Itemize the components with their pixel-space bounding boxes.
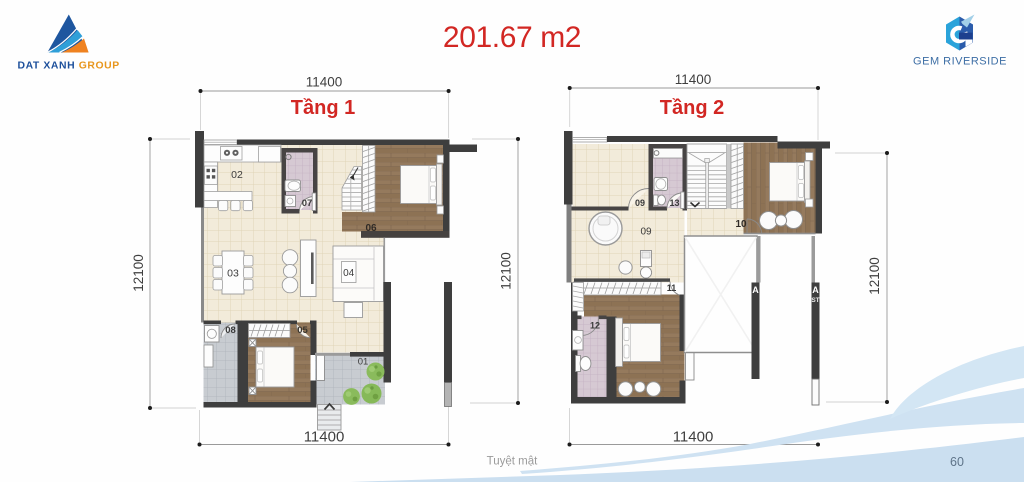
svg-text:60: 60: [950, 455, 964, 469]
svg-text:13: 13: [669, 198, 679, 208]
svg-text:201.67 m2: 201.67 m2: [443, 21, 581, 54]
svg-text:08: 08: [225, 325, 236, 336]
svg-text:12100: 12100: [499, 252, 514, 290]
svg-text:11400: 11400: [675, 72, 712, 87]
svg-text:11400: 11400: [304, 429, 345, 446]
svg-text:A: A: [812, 285, 819, 295]
svg-text:04: 04: [343, 268, 355, 279]
svg-text:Tầng 2: Tầng 2: [660, 97, 724, 119]
svg-text:Tầng 1: Tầng 1: [291, 97, 355, 119]
svg-text:ST: ST: [811, 297, 819, 304]
svg-text:11400: 11400: [306, 75, 343, 90]
svg-text:01: 01: [358, 357, 369, 368]
svg-text:12: 12: [590, 321, 600, 331]
svg-text:Tuyệt mật: Tuyệt mật: [487, 456, 539, 468]
svg-text:02: 02: [231, 169, 243, 181]
svg-text:11: 11: [667, 283, 677, 293]
svg-text:09: 09: [640, 227, 652, 238]
svg-text:12100: 12100: [867, 257, 882, 295]
svg-text:05: 05: [297, 325, 308, 336]
svg-text:03: 03: [227, 268, 239, 280]
svg-text:11400: 11400: [673, 429, 714, 446]
svg-text:09: 09: [635, 198, 645, 208]
svg-text:07: 07: [302, 198, 313, 209]
svg-text:10: 10: [735, 219, 747, 230]
svg-text:06: 06: [365, 223, 377, 234]
svg-text:DAT XANH GROUP: DAT XANH GROUP: [18, 61, 120, 72]
svg-text:GEM RIVERSIDE: GEM RIVERSIDE: [913, 56, 1007, 68]
svg-text:12100: 12100: [131, 254, 146, 292]
svg-text:A: A: [752, 285, 759, 295]
